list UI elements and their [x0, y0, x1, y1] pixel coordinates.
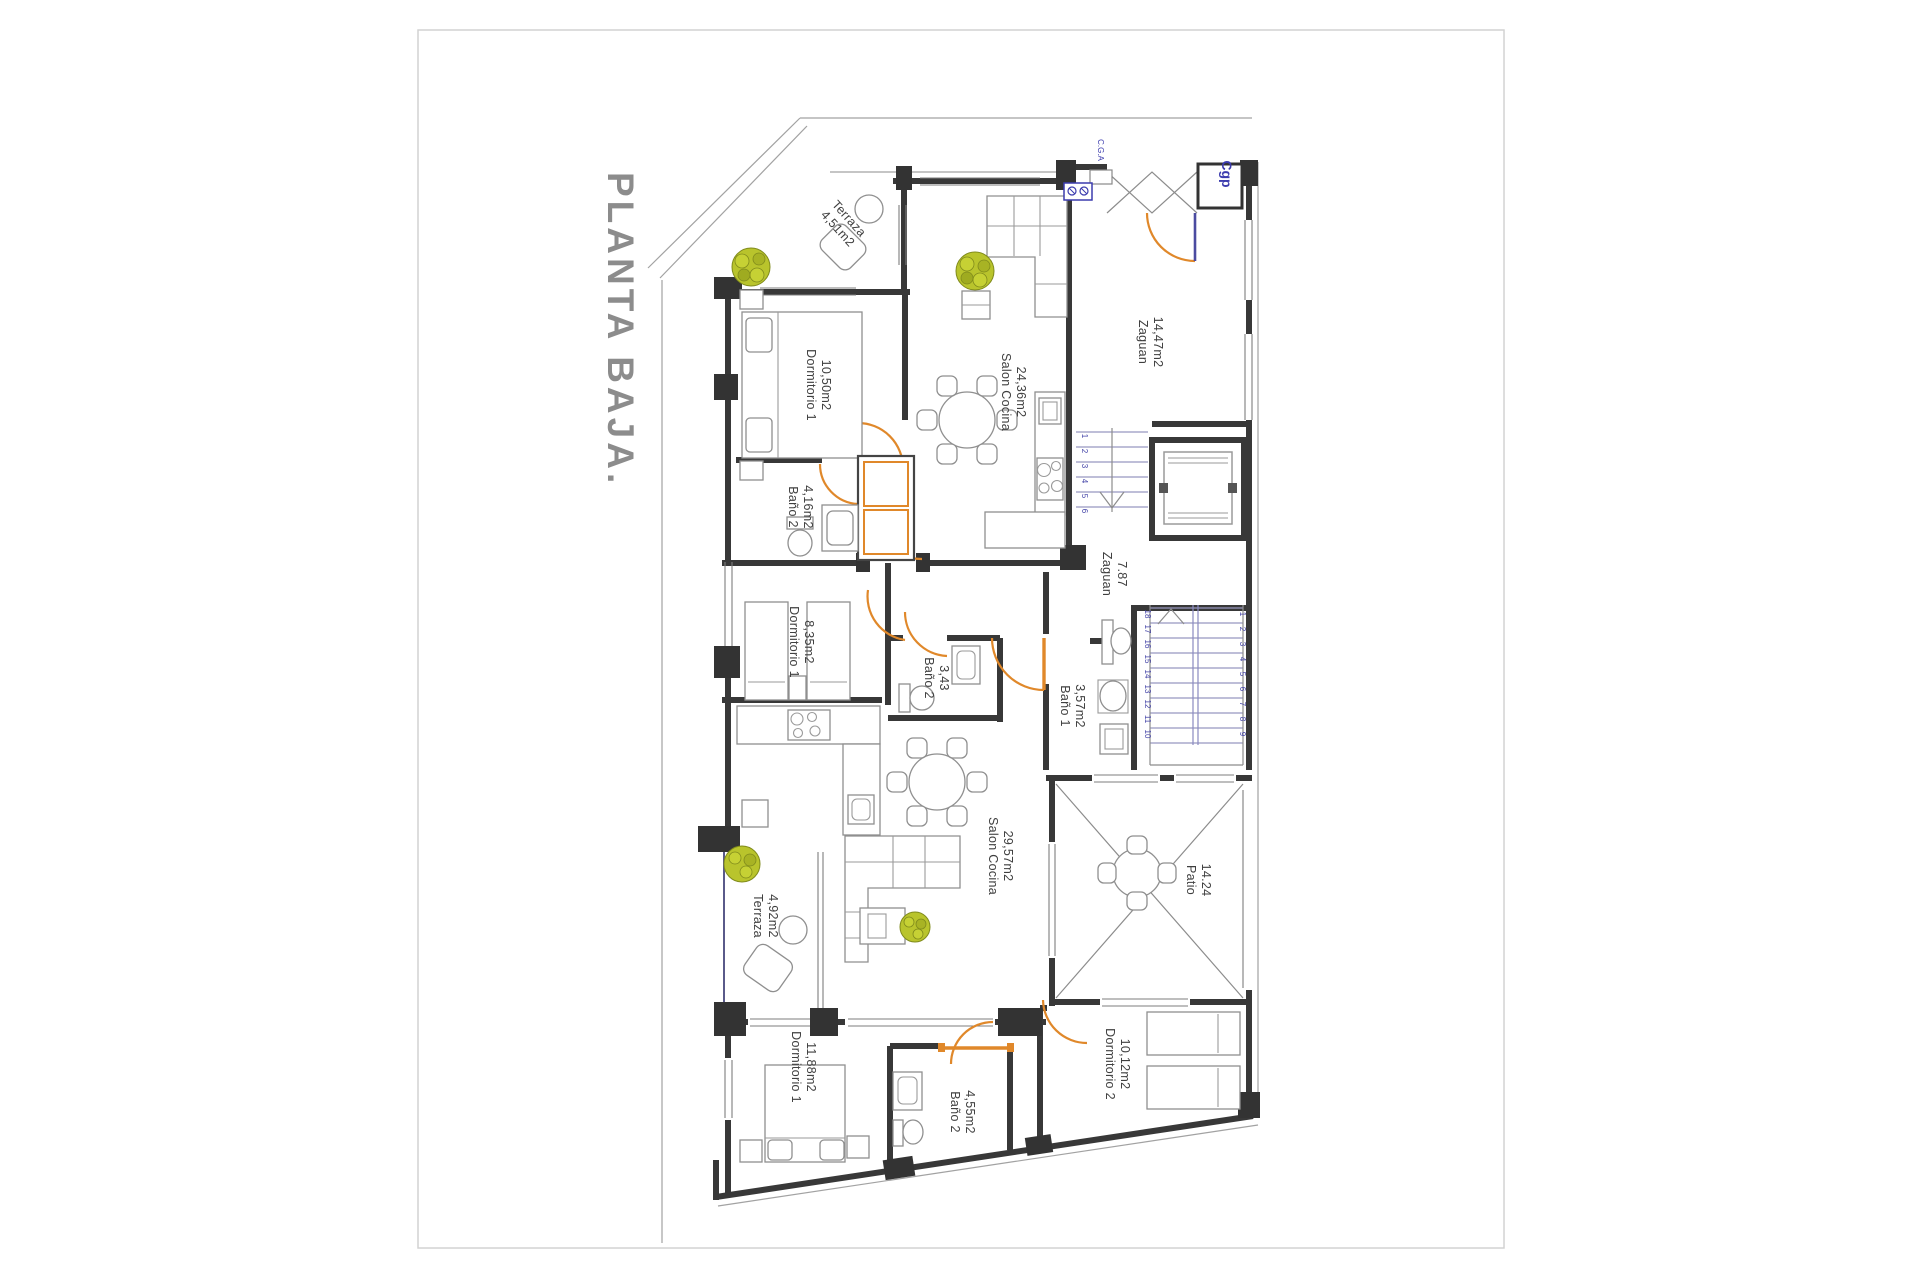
svg-text:7.87: 7.87	[1115, 561, 1129, 587]
svg-text:3,57m2: 3,57m2	[1073, 684, 1087, 728]
nightstand	[740, 290, 763, 309]
svg-text:Baño 1: Baño 1	[1058, 685, 1072, 726]
elevator	[1152, 440, 1244, 538]
svg-text:14.24: 14.24	[1199, 864, 1213, 897]
patio-table	[1113, 849, 1161, 897]
svg-text:1: 1	[1238, 612, 1247, 617]
svg-text:2: 2	[1238, 627, 1247, 632]
page-title: PLANTA BAJA.	[600, 172, 641, 487]
svg-text:Zaguan: Zaguan	[1136, 320, 1150, 364]
svg-text:1: 1	[1080, 434, 1089, 439]
svg-text:Baño 2: Baño 2	[948, 1091, 962, 1132]
room-label-zaguan-1: 14,47m2 Zaguan	[1136, 317, 1165, 368]
svg-text:17: 17	[1143, 625, 1152, 634]
svg-text:8: 8	[1238, 717, 1247, 722]
svg-text:24,36m2: 24,36m2	[1014, 367, 1028, 418]
bed-single	[1147, 1012, 1240, 1055]
electrical-box	[1064, 183, 1092, 200]
svg-text:14,47m2: 14,47m2	[1151, 317, 1165, 368]
svg-text:Salon Cocina: Salon Cocina	[986, 817, 1000, 895]
bed-single	[745, 602, 788, 700]
svg-text:Dormitorio 1: Dormitorio 1	[789, 1031, 803, 1103]
wardrobe	[858, 456, 914, 560]
svg-text:16: 16	[1143, 640, 1152, 649]
svg-text:14: 14	[1143, 670, 1152, 679]
svg-text:7: 7	[1238, 702, 1247, 707]
svg-text:4,92m2: 4,92m2	[766, 894, 780, 938]
room-label-patio: 14.24 Patio	[1184, 864, 1213, 897]
room-label-terraza-2: 4,92m2 Terraza	[751, 894, 780, 938]
tv-table	[860, 908, 905, 944]
svg-text:6: 6	[1238, 687, 1247, 692]
sink-cabinet	[822, 505, 858, 551]
cgp-label: Cgp	[1219, 160, 1235, 187]
svg-text:2: 2	[1080, 449, 1089, 454]
svg-text:3: 3	[1238, 642, 1247, 647]
svg-text:11: 11	[1143, 715, 1152, 724]
svg-text:3,43: 3,43	[937, 665, 951, 691]
plant-icon	[724, 846, 760, 882]
toilet	[893, 1120, 923, 1146]
svg-text:Baño 2: Baño 2	[922, 657, 936, 698]
dining-table	[909, 754, 965, 810]
svg-text:5: 5	[1080, 494, 1089, 499]
svg-text:5: 5	[1238, 672, 1247, 677]
svg-text:Dormitorio 1: Dormitorio 1	[804, 349, 818, 421]
svg-text:Baño 2: Baño 2	[786, 486, 800, 527]
terrace-table	[779, 916, 807, 944]
svg-text:Terraza: Terraza	[751, 894, 765, 938]
meter-box	[1090, 170, 1112, 184]
svg-text:Dormitorio 2: Dormitorio 2	[1103, 1028, 1117, 1100]
plant-icon	[732, 248, 770, 286]
nightstand	[740, 1140, 762, 1162]
plant-icon	[956, 252, 994, 290]
room-label-bano2-apt1: 4,16m2 Baño 2	[786, 485, 815, 529]
svg-text:13: 13	[1143, 685, 1152, 694]
svg-text:4,16m2: 4,16m2	[801, 485, 815, 529]
room-label-bano2-bottom: 4,55m2 Baño 2	[948, 1090, 977, 1134]
svg-text:11,88m2: 11,88m2	[804, 1042, 818, 1092]
svg-text:29,57m2: 29,57m2	[1001, 831, 1015, 882]
svg-text:12: 12	[1143, 700, 1152, 709]
cga-label: C.G.A	[1096, 139, 1105, 161]
svg-text:15: 15	[1143, 655, 1152, 664]
svg-text:4: 4	[1238, 657, 1247, 662]
svg-text:9: 9	[1238, 732, 1247, 737]
nightstand	[740, 461, 763, 480]
room-label-bano1: 3,57m2 Baño 1	[1058, 684, 1087, 728]
svg-text:4,55m2: 4,55m2	[963, 1090, 977, 1134]
svg-text:Zaguan: Zaguan	[1100, 552, 1114, 596]
floor-plan-drawing: PLANTA BAJA.	[0, 0, 1920, 1280]
floor-plan-page: PLANTA BAJA.	[0, 0, 1920, 1280]
svg-text:6: 6	[1080, 509, 1089, 514]
room-label-dormitorio2: 10,12m2 Dormitorio 2	[1103, 1028, 1132, 1100]
svg-text:3: 3	[1080, 464, 1089, 469]
sink-cabinet	[952, 646, 980, 684]
svg-text:10,50m2: 10,50m2	[819, 360, 833, 411]
svg-text:Patio: Patio	[1184, 865, 1198, 895]
side-table	[742, 800, 768, 827]
svg-text:10,12m2: 10,12m2	[1118, 1039, 1132, 1090]
svg-text:4: 4	[1080, 479, 1089, 484]
bed-single	[1147, 1066, 1240, 1109]
svg-text:10: 10	[1143, 730, 1152, 739]
dining-table	[939, 392, 995, 448]
svg-text:Dormitorio 1: Dormitorio 1	[787, 606, 801, 678]
nightstand	[789, 676, 806, 700]
nightstand	[847, 1136, 869, 1158]
svg-text:8,35m2: 8,35m2	[802, 620, 816, 664]
plant-icon	[900, 912, 930, 942]
room-label-dormitorio1-apt1: 10,50m2 Dormitorio 1	[804, 349, 833, 421]
svg-text:Salon Cocina: Salon Cocina	[999, 353, 1013, 431]
svg-text:18: 18	[1143, 610, 1152, 619]
